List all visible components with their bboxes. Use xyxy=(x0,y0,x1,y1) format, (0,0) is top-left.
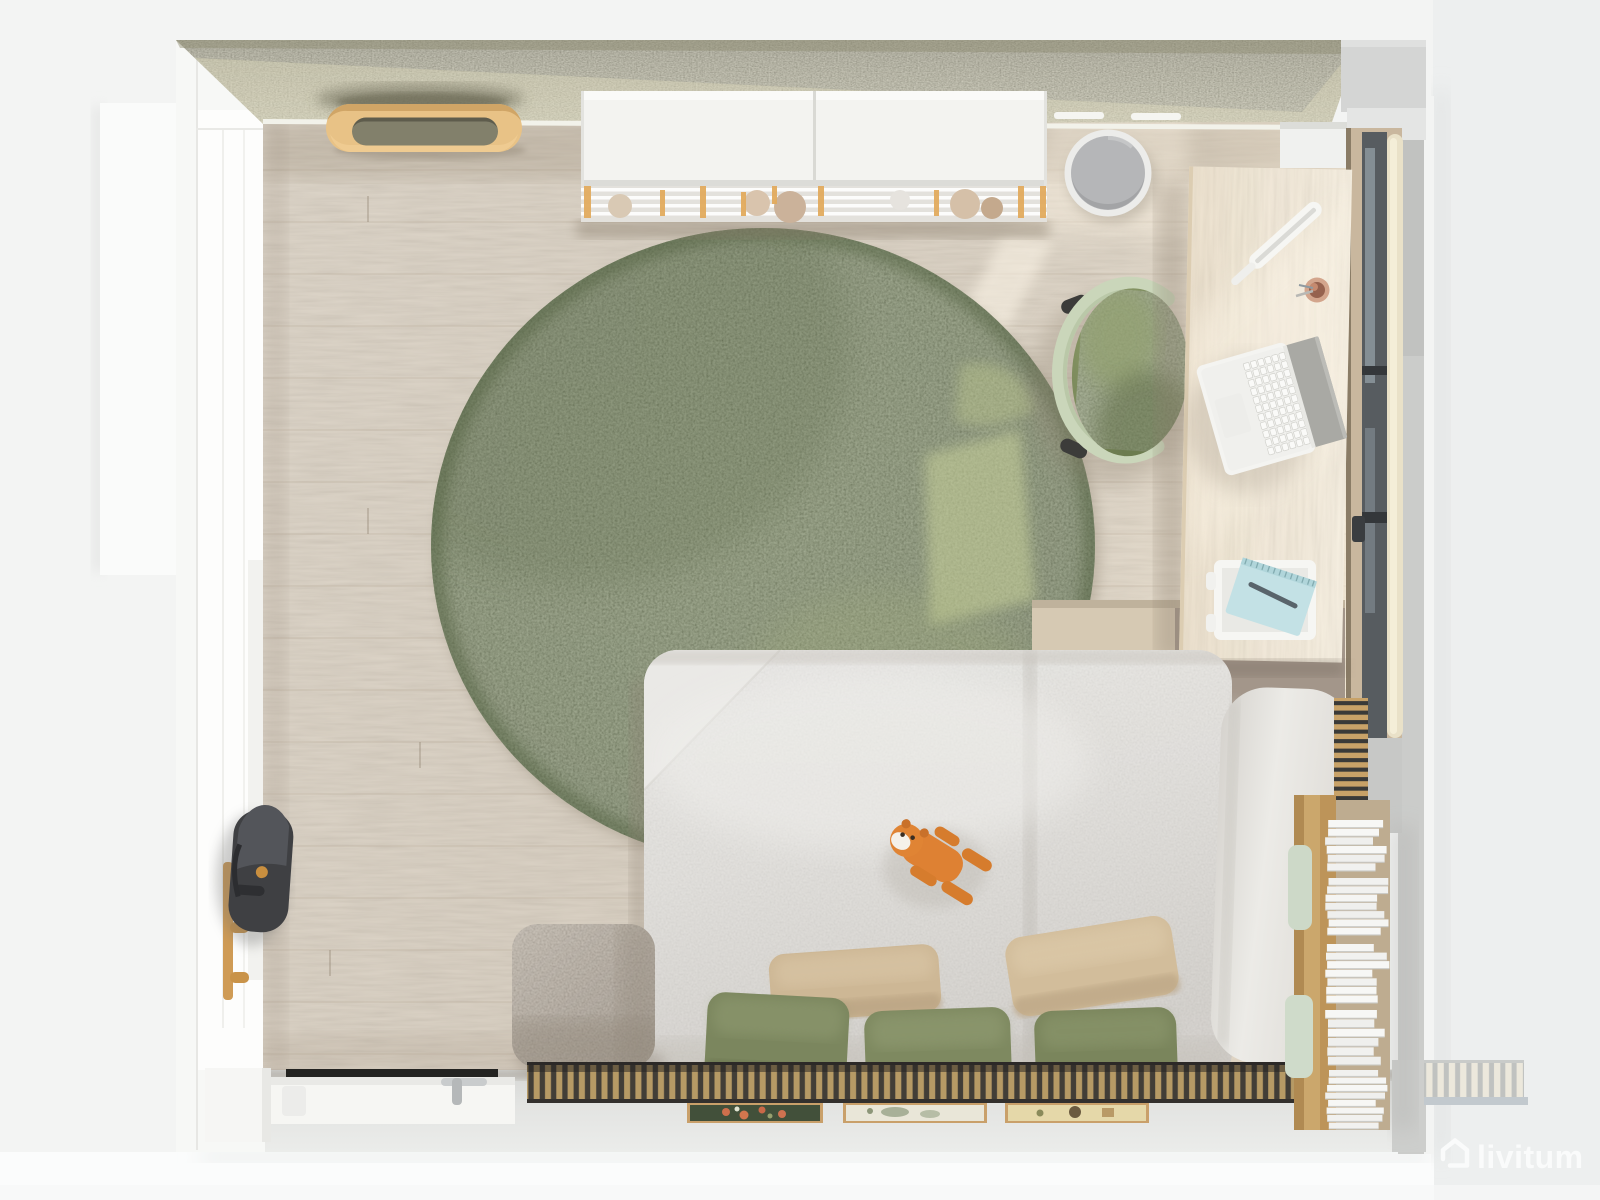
svg-text:livitum: livitum xyxy=(1477,1139,1584,1175)
